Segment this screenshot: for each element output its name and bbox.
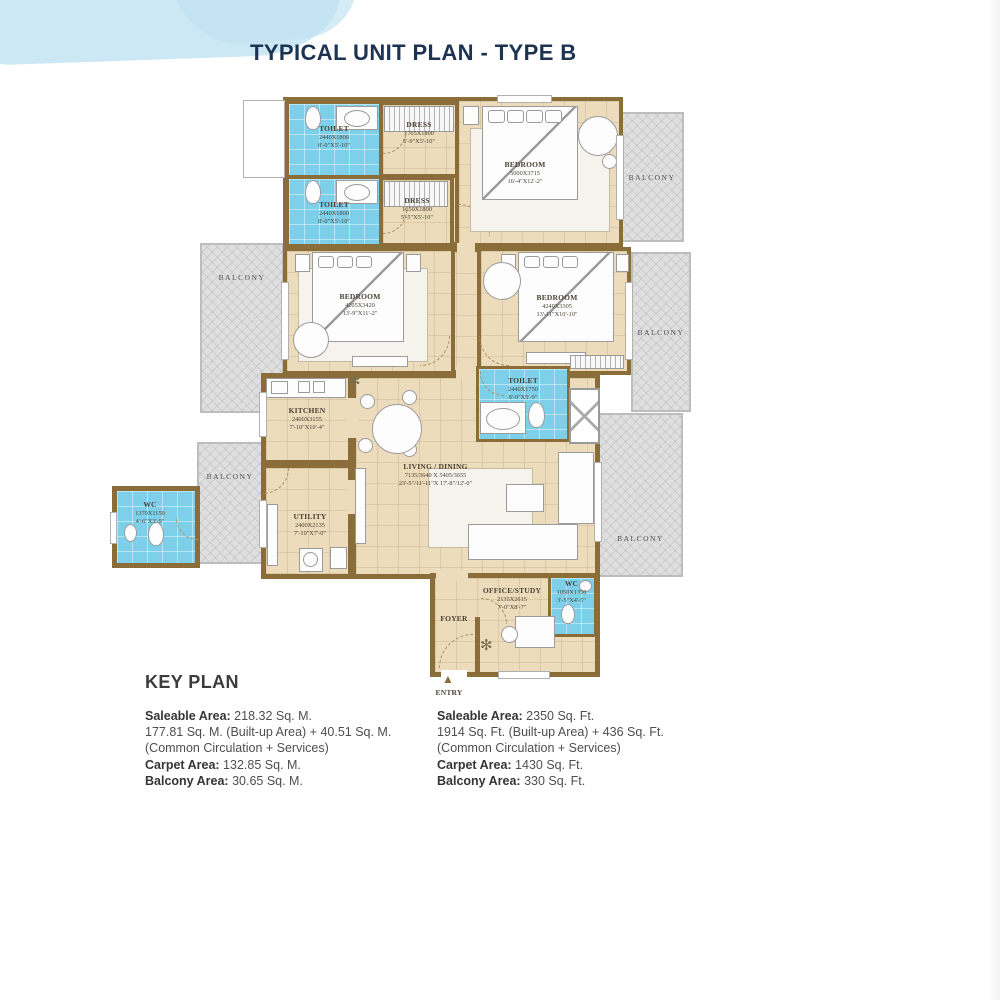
- pillow: [526, 110, 543, 123]
- plant-icon: ✻: [348, 374, 361, 389]
- tv-unit: [355, 468, 366, 544]
- key-plan-metric: Saleable Area: 218.32 Sq. M. 177.81 Sq. …: [145, 708, 450, 789]
- room-label-toilet-2: TOILET 2440X1800 8'-0"X5'-10": [296, 200, 372, 226]
- side-table: [295, 254, 310, 272]
- plant-icon: ✻: [480, 638, 493, 653]
- door-gap: [457, 243, 475, 255]
- page-edge-shadow: [988, 0, 1000, 1000]
- room-label-office-study: OFFICE/STUDY 2135X2615 7'-0"X8'-7": [472, 586, 552, 612]
- window: [497, 95, 552, 103]
- hob-burner: [298, 381, 310, 393]
- balcony-top-right: BALCONY: [620, 112, 684, 242]
- balcony-left-lower: BALCONY: [197, 442, 263, 564]
- common-circulation-metric: (Common Circulation + Services): [145, 740, 450, 756]
- room-label-kitchen: KITCHEN 2400X3155 7'-10"X10'-4": [272, 406, 342, 432]
- room-label-wc-right: WC 1050X1350 3'-5"X4'-5": [549, 579, 594, 605]
- washing-machine-drum: [303, 552, 318, 567]
- wardrobe: [570, 355, 624, 369]
- side-table: [463, 106, 479, 125]
- saleable-area-imperial: Saleable Area: 2350 Sq. Ft.: [437, 708, 742, 724]
- carpet-area-metric: Carpet Area: 132.85 Sq. M.: [145, 757, 450, 773]
- builtup-area-metric: 177.81 Sq. M. (Built-up Area) + 40.51 Sq…: [145, 724, 450, 740]
- common-circulation-imperial: (Common Circulation + Services): [437, 740, 742, 756]
- room-label-bedroom-2: BEDROOM 4205X3420 13'-9"X11'-2": [310, 292, 410, 318]
- window: [594, 462, 602, 542]
- utility-sink: [330, 547, 347, 569]
- dining-chair: [358, 438, 373, 453]
- room-label-dress-2: DRESS 1650X1800 5'-5"X5'-10": [382, 196, 452, 222]
- balcony-area-metric: Balcony Area: 30.65 Sq. M.: [145, 773, 450, 789]
- dining-table: [372, 404, 422, 454]
- window: [616, 135, 624, 220]
- balcony-right-middle: BALCONY: [631, 252, 691, 412]
- room-label-bedroom-3: BEDROOM 4240X3305 13'-11"X10'-10": [502, 293, 612, 319]
- room-label-dress-1: DRESS 1765X1800 5'-9"X5'-10": [384, 120, 454, 146]
- pillow: [543, 256, 559, 268]
- room-label-toilet-3: TOILET 2440X1750 8'-0"X5'-9": [486, 376, 560, 402]
- balcony-label: BALCONY: [617, 534, 664, 543]
- desk-chair: [501, 626, 518, 643]
- pillow: [507, 110, 524, 123]
- kitchen-sink: [271, 381, 288, 394]
- pillow: [356, 256, 372, 268]
- dining-chair: [402, 390, 417, 405]
- door-gap: [436, 569, 468, 581]
- armchair: [293, 322, 329, 358]
- room-label-bedroom-1: BEDROOM 5000X3715 16'-4"X12'-2": [470, 160, 580, 186]
- carpet-area-imperial: Carpet Area: 1430 Sq. Ft.: [437, 757, 742, 773]
- window: [259, 392, 267, 437]
- door-gap: [347, 398, 359, 438]
- entry-arrow-icon: ▲: [442, 672, 454, 686]
- floor-plan-page: TYPICAL UNIT PLAN - TYPE B BALCONY BALCO…: [0, 0, 1000, 1000]
- balcony-label: BALCONY: [207, 472, 254, 481]
- side-table: [616, 254, 629, 272]
- entry-label: ENTRY: [426, 688, 472, 698]
- pillow: [524, 256, 540, 268]
- key-plan-heading: KEY PLAN: [145, 672, 239, 693]
- hob-burner: [313, 381, 325, 393]
- coffee-table: [506, 484, 544, 512]
- window: [243, 100, 285, 178]
- balcony-area-imperial: Balcony Area: 330 Sq. Ft.: [437, 773, 742, 789]
- balcony-label: BALCONY: [219, 273, 266, 282]
- key-plan-imperial: Saleable Area: 2350 Sq. Ft. 1914 Sq. Ft.…: [437, 708, 742, 789]
- toilet-pot: [561, 604, 575, 624]
- balcony-label: BALCONY: [629, 173, 676, 182]
- room-label-wc-left: WC 1370X1150 4'-6"X3'-9": [118, 500, 182, 526]
- dresser: [352, 356, 408, 367]
- toilet-pot: [528, 402, 545, 428]
- sofa: [558, 452, 594, 524]
- builtup-area-imperial: 1914 Sq. Ft. (Built-up Area) + 436 Sq. F…: [437, 724, 742, 740]
- balcony-bottom-right: BALCONY: [598, 413, 683, 577]
- sink: [486, 408, 520, 430]
- window: [259, 500, 267, 548]
- balcony-label: BALCONY: [638, 328, 685, 337]
- saleable-area-metric: Saleable Area: 218.32 Sq. M.: [145, 708, 450, 724]
- desk: [515, 616, 555, 648]
- room-label-foyer: FOYER: [432, 614, 476, 624]
- pillow: [545, 110, 562, 123]
- room-label-toilet-1: TOILET 2440X1800 8'-0"X5'-10": [296, 124, 372, 150]
- sofa: [468, 524, 578, 560]
- dining-chair: [360, 394, 375, 409]
- window: [281, 282, 289, 360]
- window: [498, 671, 550, 679]
- pillow: [562, 256, 578, 268]
- sink: [344, 184, 370, 201]
- pillow: [488, 110, 505, 123]
- duct-shaft: [569, 388, 600, 444]
- armchair: [578, 116, 618, 156]
- window: [110, 512, 117, 544]
- room-label-living-dining: LIVING / DINING 7135/3640 X 5405/3655 23…: [378, 462, 493, 488]
- floor-plan: BALCONY BALCONY BALCONY BALCONY BALCONY: [0, 0, 1000, 1000]
- pillow: [318, 256, 334, 268]
- room-label-utility: UTILITY 2400X2135 7'-10"X7'-0": [275, 512, 345, 538]
- sink: [124, 524, 137, 542]
- page-title: TYPICAL UNIT PLAN - TYPE B: [250, 40, 577, 66]
- door-gap: [456, 367, 476, 379]
- side-table: [406, 254, 421, 272]
- pillow: [337, 256, 353, 268]
- window: [625, 282, 633, 360]
- footstool: [602, 154, 617, 169]
